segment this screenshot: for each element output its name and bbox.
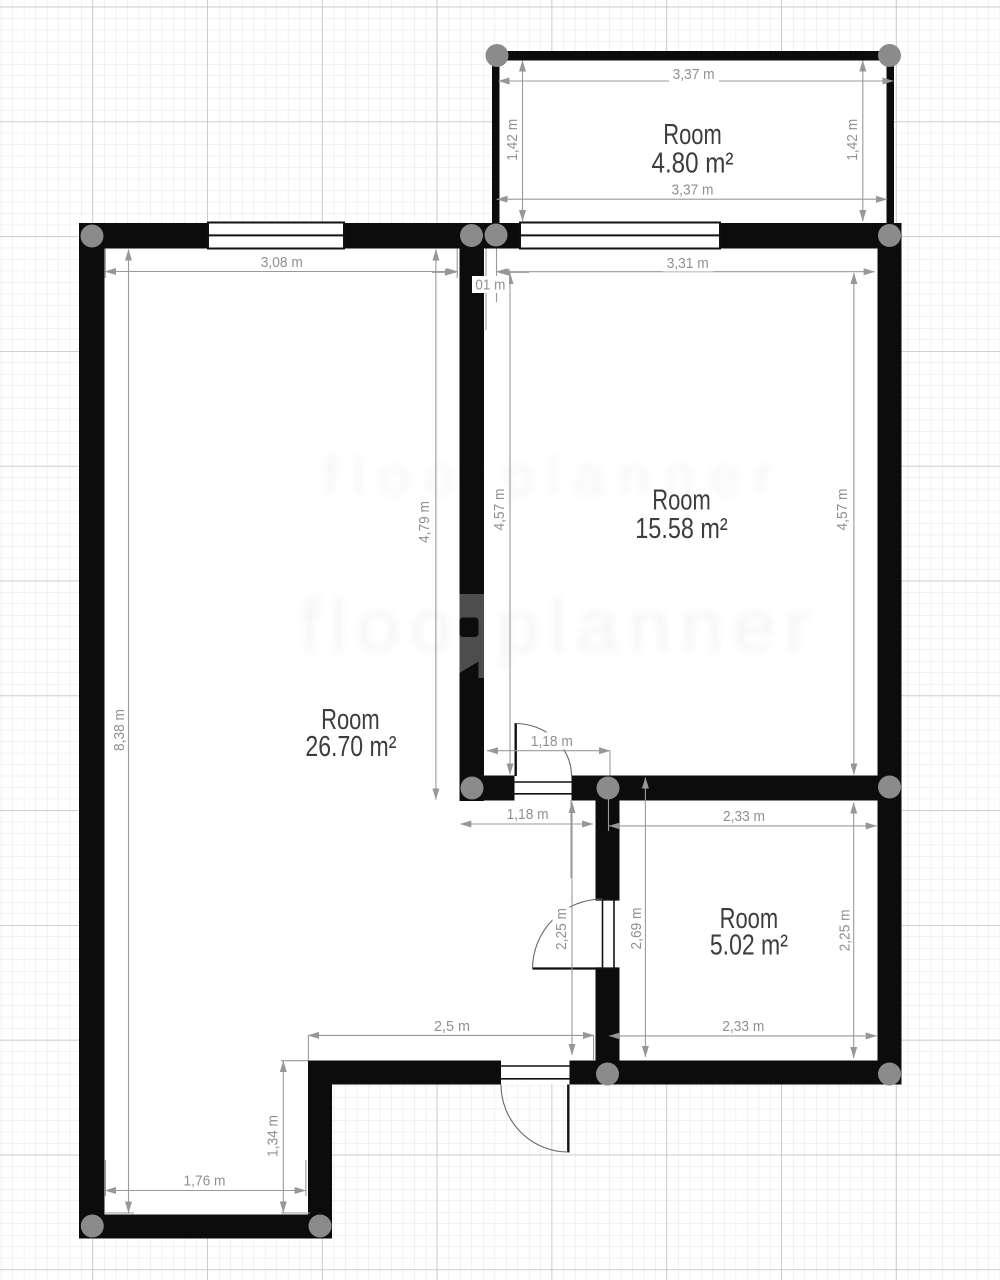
svg-text:4,57 m: 4,57 m: [491, 489, 508, 531]
svg-text:1,76 m: 1,76 m: [184, 1173, 226, 1190]
svg-text:2,25 m: 2,25 m: [837, 909, 854, 951]
svg-text:3,37 m: 3,37 m: [673, 66, 715, 83]
svg-text:2,69 m: 2,69 m: [628, 908, 645, 950]
svg-text:Room: Room: [663, 119, 722, 151]
svg-text:15.58 m²: 15.58 m²: [635, 513, 728, 545]
svg-text:1,18 m: 1,18 m: [531, 733, 573, 750]
svg-text:26.70 m²: 26.70 m²: [305, 731, 396, 763]
svg-text:5.02 m²: 5.02 m²: [710, 930, 788, 962]
svg-text:3,37 m: 3,37 m: [672, 181, 714, 198]
svg-text:floorplanner: floorplanner: [323, 444, 787, 507]
svg-text:Room: Room: [652, 485, 711, 517]
svg-text:2,33 m: 2,33 m: [723, 808, 765, 825]
svg-text:1,34 m: 1,34 m: [265, 1115, 282, 1157]
svg-text:8,38 m: 8,38 m: [111, 709, 128, 751]
svg-text:1,42 m: 1,42 m: [844, 119, 861, 161]
svg-text:1,18 m: 1,18 m: [507, 806, 549, 823]
svg-text:01 m: 01 m: [475, 277, 505, 294]
svg-text:2,5 m: 2,5 m: [434, 1018, 470, 1035]
svg-text:4.80 m²: 4.80 m²: [652, 147, 734, 179]
svg-text:3,08 m: 3,08 m: [261, 254, 303, 271]
svg-text:4,57 m: 4,57 m: [834, 489, 851, 531]
svg-text:2,33 m: 2,33 m: [722, 1018, 764, 1035]
svg-text:3,31 m: 3,31 m: [667, 255, 709, 272]
svg-text:2,25 m: 2,25 m: [553, 908, 570, 950]
svg-text:1,42 m: 1,42 m: [504, 119, 521, 161]
svg-text:4,79 m: 4,79 m: [416, 501, 433, 543]
svg-text:floorplanner: floorplanner: [299, 584, 820, 669]
